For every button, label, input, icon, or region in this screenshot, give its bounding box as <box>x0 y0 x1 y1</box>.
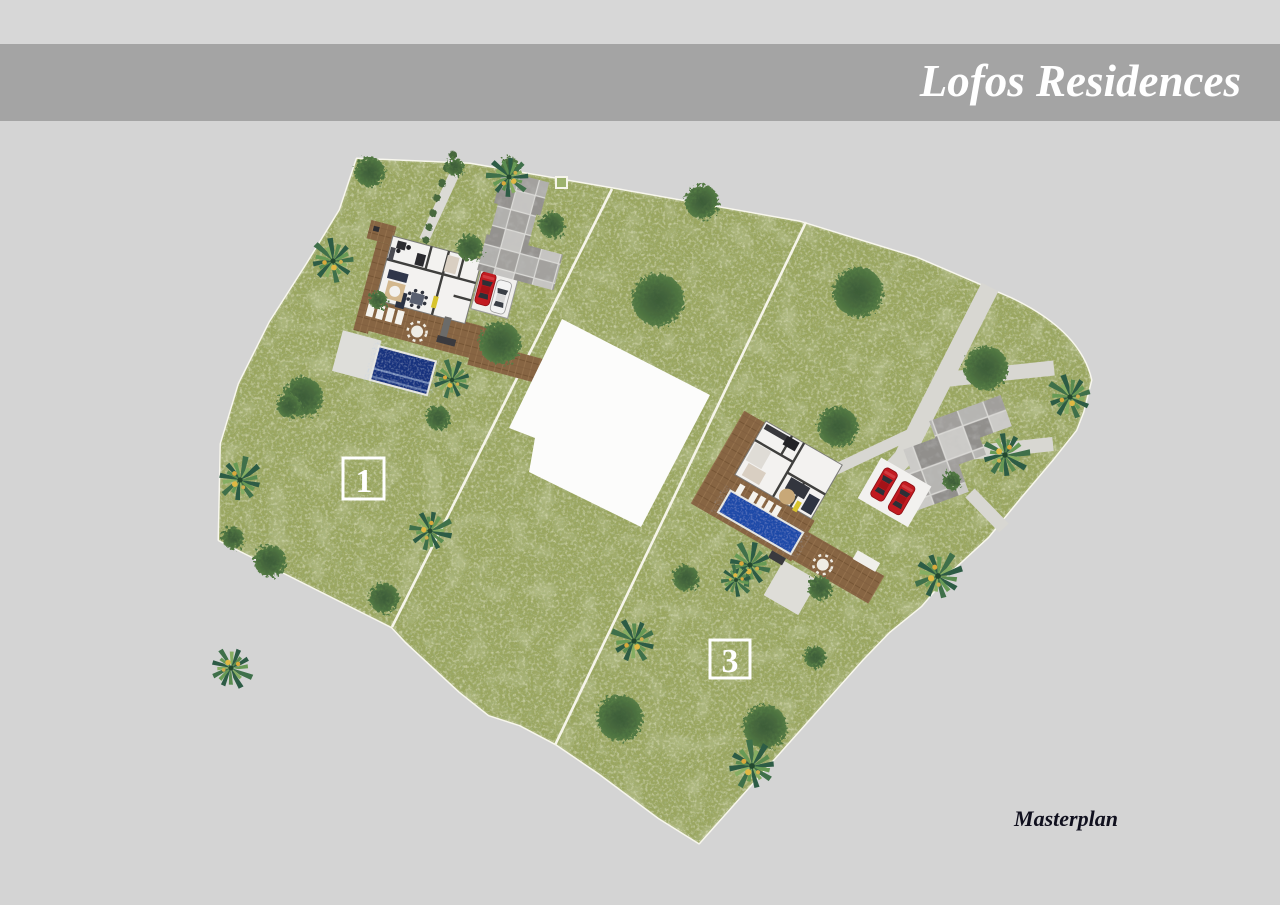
svg-text:1: 1 <box>356 463 373 500</box>
svg-text:3: 3 <box>722 643 739 680</box>
svg-text:Lofos Residences: Lofos Residences <box>919 56 1241 106</box>
svg-text:Masterplan: Masterplan <box>1013 806 1118 831</box>
